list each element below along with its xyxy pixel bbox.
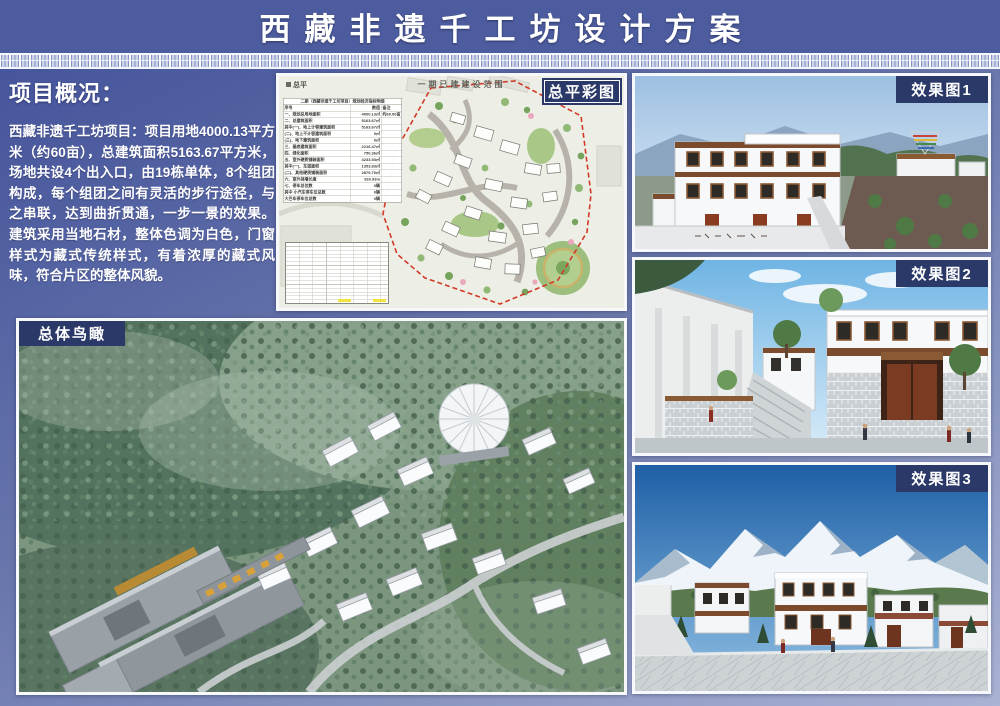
overview-heading: 项目概况： [9,76,275,108]
title-banner: 西藏非遗千工坊设计方案 [0,0,1000,53]
render2-panel: 效果图2 [632,257,991,456]
aerial-illustration [19,321,624,692]
render3-plate: 效果图3 [896,465,988,492]
aerial-view-panel: 总体鸟瞰 [16,318,627,695]
overview-body-text: 西藏非遗千工坊项目：项目用地4000.13平方米（约60亩），总建筑面积5163… [9,122,275,287]
render1-plate: 效果图1 [896,76,988,103]
render3-panel: 效果图3 [632,462,991,694]
render1-panel: 效果图1 [632,73,991,252]
site-plan-corner-note: 总平 [286,80,307,90]
poster-title: 西藏非遗千工坊设计方案 [246,4,755,49]
design-poster: 西藏非遗千工坊设计方案 项目概况： 西藏非遗千工坊项目：项目用地4000.13平… [0,0,1000,706]
render2-plate: 效果图2 [896,260,988,287]
render3-illustration [635,465,988,691]
tibetan-border-pattern [0,53,1000,69]
unit-index-micro-table [285,242,389,304]
render2-plate-label: 效果图2 [911,263,972,284]
render1-plate-label: 效果图1 [911,79,972,100]
corner-marker-icon [286,82,291,87]
site-plan-index-table: 二期（西藏非遗千工坊项目）规划经济指标明细 序号数值备注一、规划总用地面积400… [283,98,402,203]
project-overview: 项目概况： 西藏非遗千工坊项目：项目用地4000.13平方米（约60亩），总建筑… [9,76,275,287]
aerial-plate: 总体鸟瞰 [19,321,125,346]
render3-plate-label: 效果图3 [911,468,972,489]
site-plan-table-rows: 序号数值备注一、规划总用地面积4000.13㎡约60.00亩二、总建筑面积516… [284,105,402,202]
render2-illustration [635,260,988,453]
site-plan-panel: 一期已建建设范围 总平 二期（西藏非遗千工坊项目）规划经济指标明细 序号数值备注… [276,73,627,311]
index-table-row: 大巴车停车位总数0辆 [284,196,402,202]
aerial-plate-label: 总体鸟瞰 [38,323,106,344]
site-plan-plate: 总平彩图 [542,78,622,105]
site-plan-plate-label: 总平彩图 [548,81,616,102]
